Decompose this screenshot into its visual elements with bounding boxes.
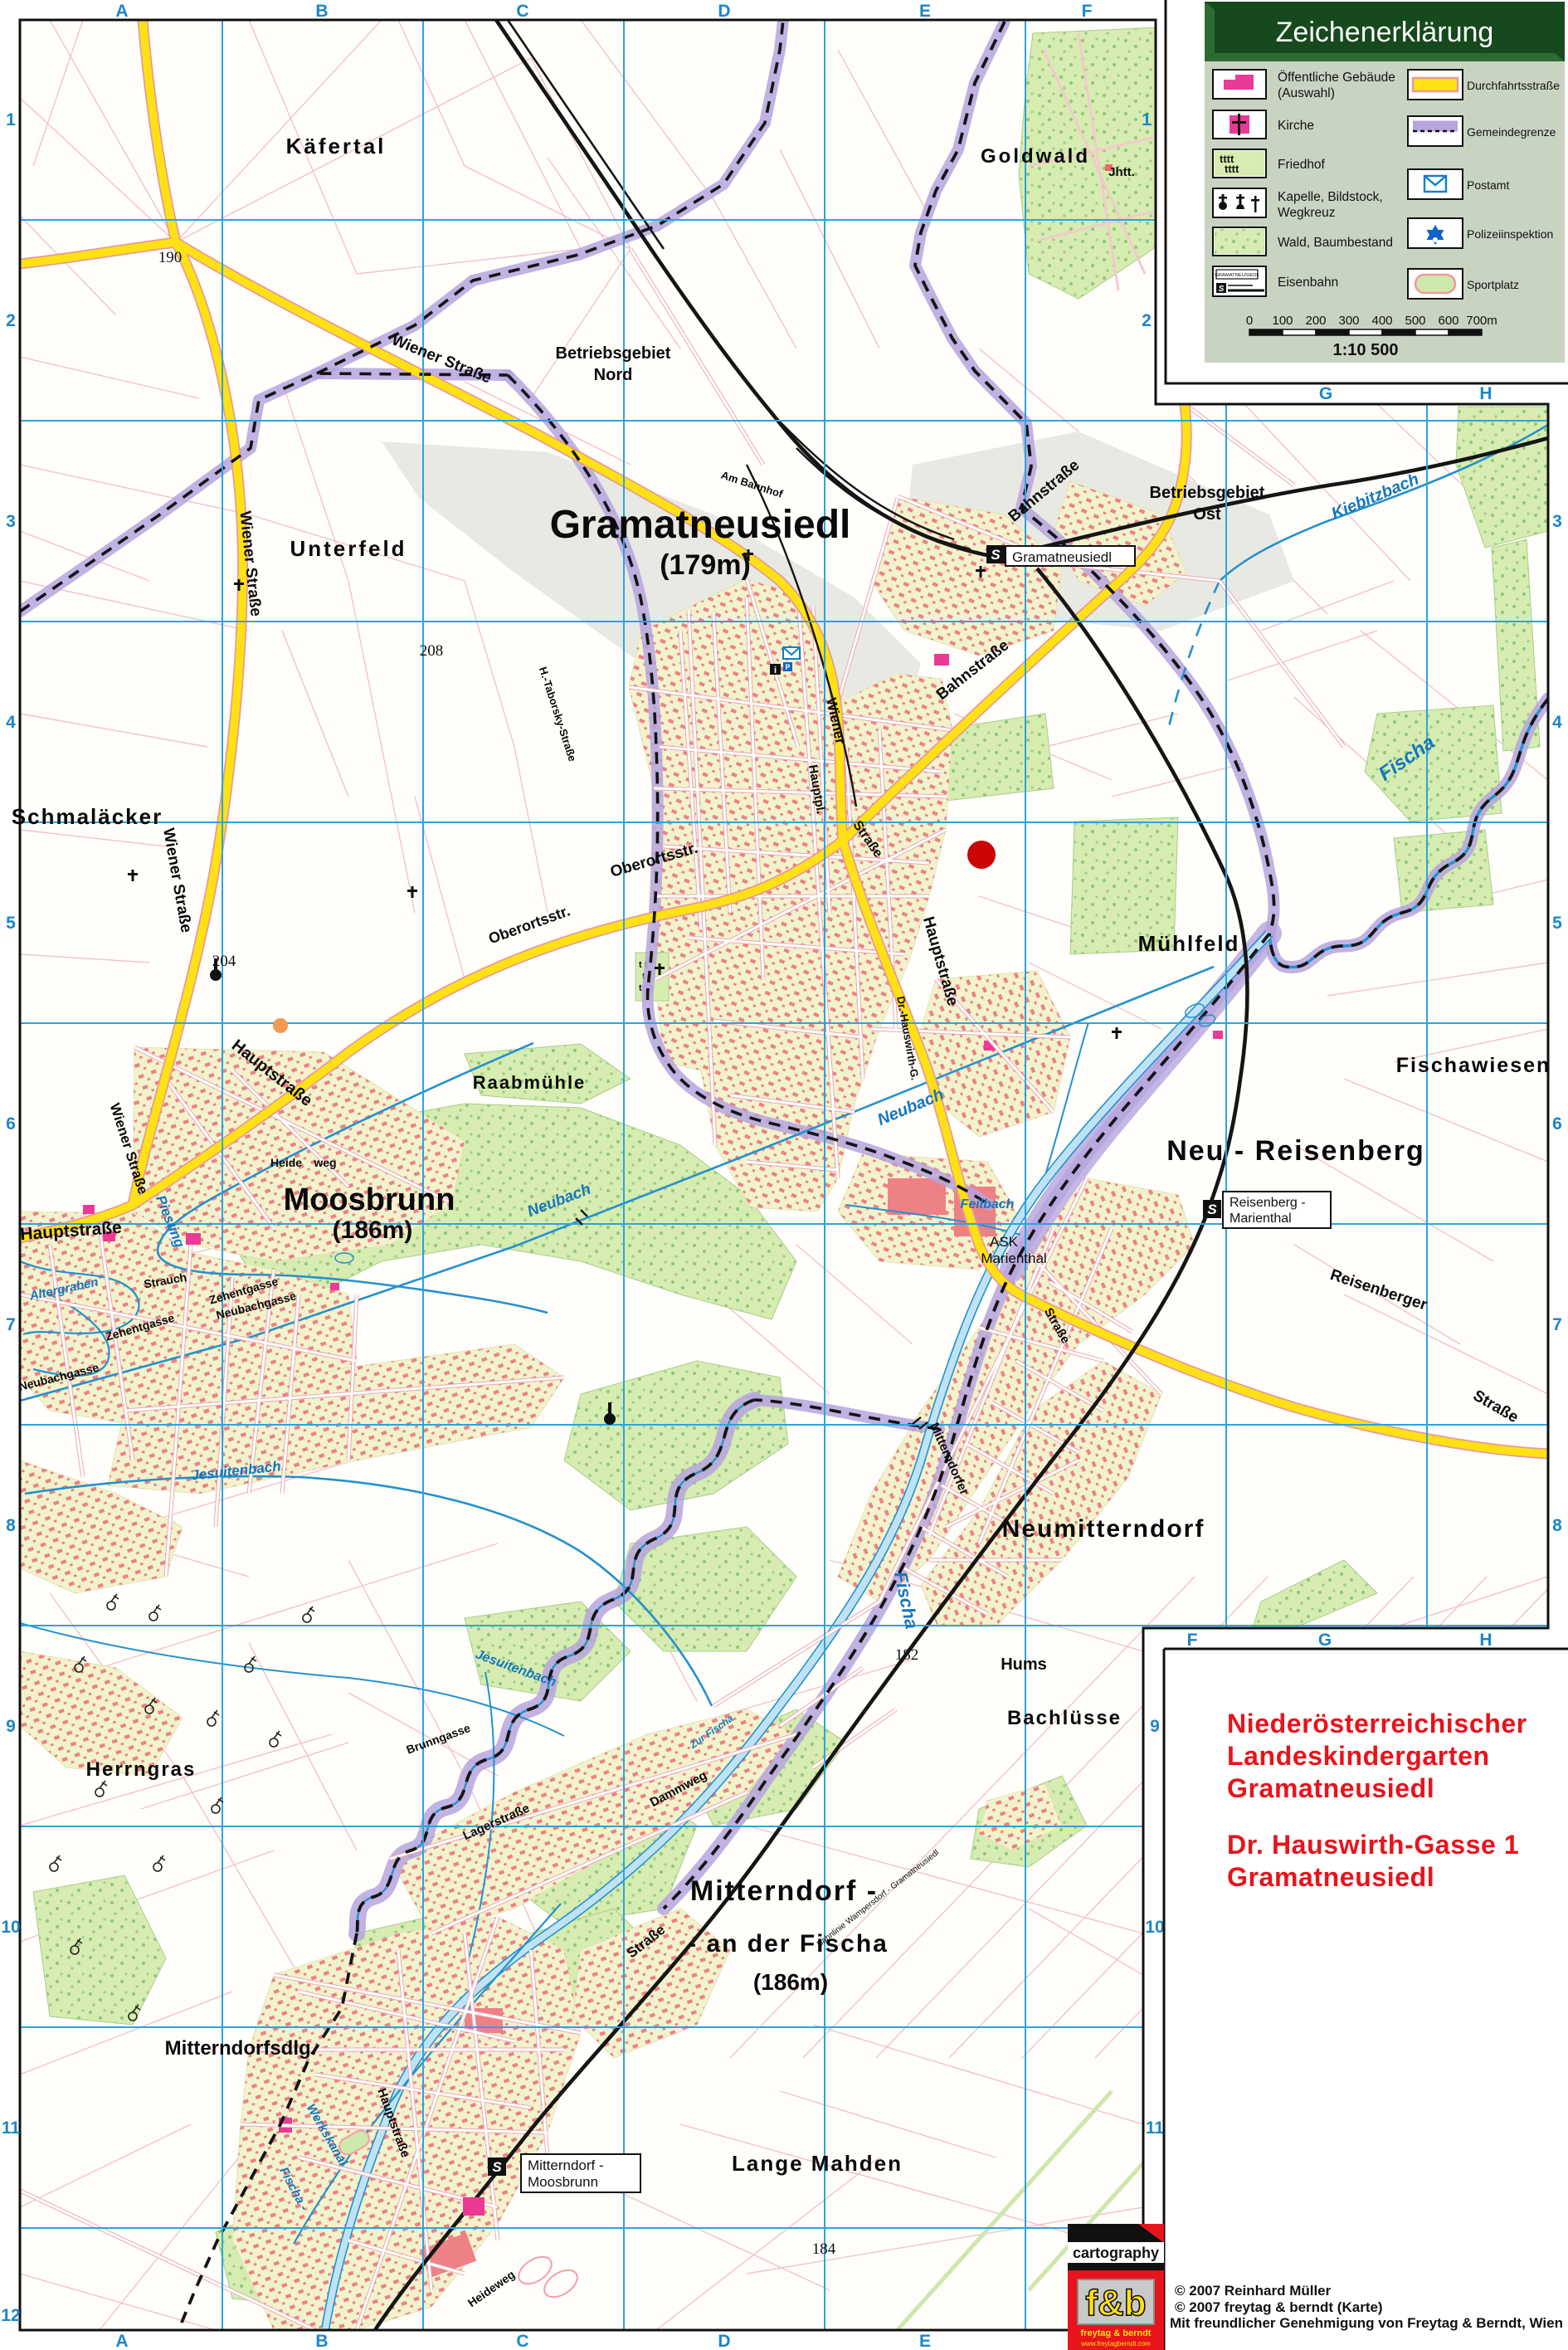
svg-text:C: C (516, 2332, 528, 2350)
svg-text:S: S (991, 547, 1001, 563)
svg-text:i: i (774, 666, 777, 675)
svg-text:Gramatneusiedl: Gramatneusiedl (550, 503, 851, 547)
svg-text:100: 100 (1272, 314, 1293, 328)
svg-text:A: A (115, 2, 128, 21)
svg-text:Nord: Nord (594, 366, 633, 384)
svg-text:Mitterndorf -: Mitterndorf - (528, 2157, 604, 2173)
svg-text:500: 500 (1405, 314, 1425, 328)
svg-text:400: 400 (1371, 314, 1392, 328)
svg-text:Mitterndorfsdlg.: Mitterndorfsdlg. (165, 2037, 317, 2060)
svg-text:Öffentliche Gebäude: Öffentliche Gebäude (1278, 70, 1395, 85)
svg-text:Eisenbahn: Eisenbahn (1278, 275, 1338, 290)
svg-text:B: B (315, 2, 328, 21)
svg-text:A: A (115, 2332, 128, 2350)
svg-text:GRAMATNEUSIEDL: GRAMATNEUSIEDL (1215, 273, 1259, 278)
svg-text:1:10 500: 1:10 500 (1333, 341, 1399, 359)
svg-text:Durchfahrtsstraße: Durchfahrtsstraße (1467, 79, 1560, 92)
svg-text:3: 3 (6, 512, 16, 531)
svg-text:1: 1 (1142, 110, 1152, 129)
svg-text:Fischawiesen: Fischawiesen (1396, 1054, 1551, 1077)
svg-text:Marienthal: Marienthal (1230, 1212, 1292, 1226)
svg-text:Raabmühle: Raabmühle (473, 1072, 587, 1093)
svg-text:Mit freundlicher Genehmigung v: Mit freundlicher Genehmigung von Freytag… (1170, 2315, 1563, 2331)
svg-text:9: 9 (1150, 1717, 1160, 1736)
svg-text:cartography: cartography (1073, 2245, 1159, 2261)
svg-text:D: D (718, 2, 730, 21)
svg-text:Gramatneusiedl: Gramatneusiedl (1227, 1862, 1434, 1892)
svg-text:Käfertal: Käfertal (286, 134, 387, 158)
svg-text:2: 2 (6, 311, 16, 330)
svg-text:700m: 700m (1466, 314, 1497, 328)
svg-text:184: 184 (812, 2240, 836, 2258)
svg-text:Goldwald: Goldwald (981, 145, 1090, 168)
svg-text:S: S (1207, 1202, 1217, 1217)
svg-text:H: H (1479, 384, 1492, 403)
svg-text:weg: weg (313, 1156, 336, 1169)
svg-text:8: 8 (6, 1516, 16, 1535)
svg-text:B: B (315, 2332, 328, 2350)
svg-text:11: 11 (1146, 2118, 1165, 2138)
svg-text:Landeskindergarten: Landeskindergarten (1227, 1741, 1490, 1771)
svg-text:Kirche: Kirche (1278, 119, 1314, 133)
svg-text:7: 7 (1552, 1315, 1562, 1334)
svg-text:Neumitterndorf: Neumitterndorf (1002, 1515, 1205, 1543)
svg-text:200: 200 (1305, 314, 1326, 328)
svg-text:5: 5 (1552, 914, 1562, 933)
svg-text:4: 4 (1552, 713, 1562, 732)
svg-text:Kapelle, Bildstock,: Kapelle, Bildstock, (1278, 190, 1383, 204)
svg-text:S: S (492, 2159, 502, 2175)
svg-text:300: 300 (1338, 314, 1359, 328)
svg-text:Feilbach: Feilbach (961, 1197, 1015, 1212)
svg-text:Niederösterreichischer: Niederösterreichischer (1227, 1709, 1527, 1738)
svg-text:Mühlfeld: Mühlfeld (1138, 931, 1240, 956)
svg-text:(Auswahl): (Auswahl) (1278, 86, 1335, 100)
svg-text:Lange Mahden: Lange Mahden (732, 2151, 903, 2176)
svg-text:S: S (1219, 285, 1225, 294)
svg-text:H: H (1479, 1631, 1492, 1650)
svg-text:P: P (785, 663, 790, 671)
svg-text:600: 600 (1438, 314, 1458, 328)
svg-text:(179m): (179m) (660, 549, 751, 581)
svg-text:G: G (1319, 384, 1332, 403)
svg-text:E: E (919, 2, 931, 21)
svg-text:Gramatneusiedl: Gramatneusiedl (1227, 1773, 1434, 1803)
svg-text:Zeichenerklärung: Zeichenerklärung (1276, 17, 1494, 48)
svg-text:Dr. Hauswirth-Gasse 1: Dr. Hauswirth-Gasse 1 (1227, 1830, 1519, 1860)
svg-text:3: 3 (1552, 512, 1562, 531)
svg-text:(186m): (186m) (333, 1216, 413, 1244)
svg-text:Postamt: Postamt (1467, 178, 1509, 192)
svg-text:Unterfeld: Unterfeld (290, 536, 407, 561)
svg-text:Wegkreuz: Wegkreuz (1278, 206, 1336, 220)
svg-text:freytag & berndt: freytag & berndt (1081, 2328, 1152, 2338)
svg-text:Hums: Hums (1001, 1655, 1047, 1674)
svg-text:Schmaläcker: Schmaläcker (12, 804, 163, 829)
svg-text:f&b: f&b (1085, 2283, 1146, 2323)
svg-text:Heide: Heide (270, 1156, 302, 1169)
svg-text:G: G (1318, 1631, 1332, 1650)
svg-text:(186m): (186m) (753, 1969, 828, 1995)
svg-text:Bachlüsse: Bachlüsse (1007, 1707, 1122, 1729)
svg-text:2: 2 (1142, 311, 1152, 330)
svg-text:Marienthal: Marienthal (981, 1251, 1046, 1266)
svg-text:6: 6 (1552, 1114, 1562, 1134)
svg-text:5: 5 (6, 914, 16, 933)
svg-text:Jhtt.: Jhtt. (1108, 165, 1135, 179)
svg-text:9: 9 (6, 1717, 16, 1736)
svg-text:10: 10 (1, 1918, 20, 1937)
svg-text:Gramatneusiedl: Gramatneusiedl (1012, 549, 1112, 565)
svg-text:1: 1 (6, 110, 16, 129)
svg-text:Neu - Reisenberg: Neu - Reisenberg (1166, 1135, 1425, 1167)
svg-text:208: 208 (420, 642, 444, 660)
svg-text:Wald, Baumbestand: Wald, Baumbestand (1278, 236, 1393, 250)
svg-text:Gemeindegrenze: Gemeindegrenze (1467, 125, 1556, 139)
svg-text:E: E (919, 2332, 931, 2350)
svg-text:F: F (1082, 2, 1093, 21)
svg-text:190: 190 (158, 249, 183, 266)
svg-text:0: 0 (1246, 314, 1253, 328)
svg-text:© 2007 freytag & berndt (Karte: © 2007 freytag & berndt (Karte) (1175, 2299, 1383, 2315)
svg-text:Herrngras: Herrngras (86, 1758, 197, 1781)
svg-text:C: C (516, 2, 528, 21)
svg-text:tttt: tttt (1225, 163, 1239, 175)
svg-text:7: 7 (6, 1315, 16, 1334)
svg-text:ASK: ASK (990, 1234, 1019, 1250)
svg-text:© 2007 Reinhard Müller: © 2007 Reinhard Müller (1175, 2283, 1332, 2299)
svg-text:182: 182 (895, 1646, 919, 1664)
svg-text:www.freytagberndt.com: www.freytagberndt.com (1080, 2340, 1151, 2348)
svg-text:6: 6 (6, 1114, 16, 1134)
svg-text:Betriebsgebiet: Betriebsgebiet (1150, 484, 1265, 502)
svg-text:Moosbrunn: Moosbrunn (284, 1182, 455, 1217)
svg-text:Reisenberg -: Reisenberg - (1230, 1196, 1306, 1210)
svg-text:Polizeiinspektion: Polizeiinspektion (1467, 227, 1553, 241)
svg-text:Sportplatz: Sportplatz (1467, 278, 1519, 291)
svg-text:D: D (718, 2332, 730, 2350)
svg-text:Mitterndorf -: Mitterndorf - (690, 1875, 878, 1907)
svg-text:204: 204 (212, 953, 236, 970)
svg-text:- an der Fischa: - an der Fischa (688, 1930, 889, 1958)
svg-text:4: 4 (6, 713, 16, 732)
svg-text:8: 8 (1552, 1516, 1562, 1535)
svg-text:Friedhof: Friedhof (1278, 158, 1326, 172)
svg-text:10: 10 (1145, 1918, 1164, 1937)
svg-text:F: F (1187, 1631, 1198, 1650)
svg-text:Moosbrunn: Moosbrunn (528, 2174, 598, 2190)
svg-text:Ost: Ost (1193, 505, 1221, 524)
svg-text:Betriebsgebiet: Betriebsgebiet (556, 344, 671, 363)
svg-text:12: 12 (1, 2306, 20, 2325)
svg-text:11: 11 (2, 2118, 21, 2138)
